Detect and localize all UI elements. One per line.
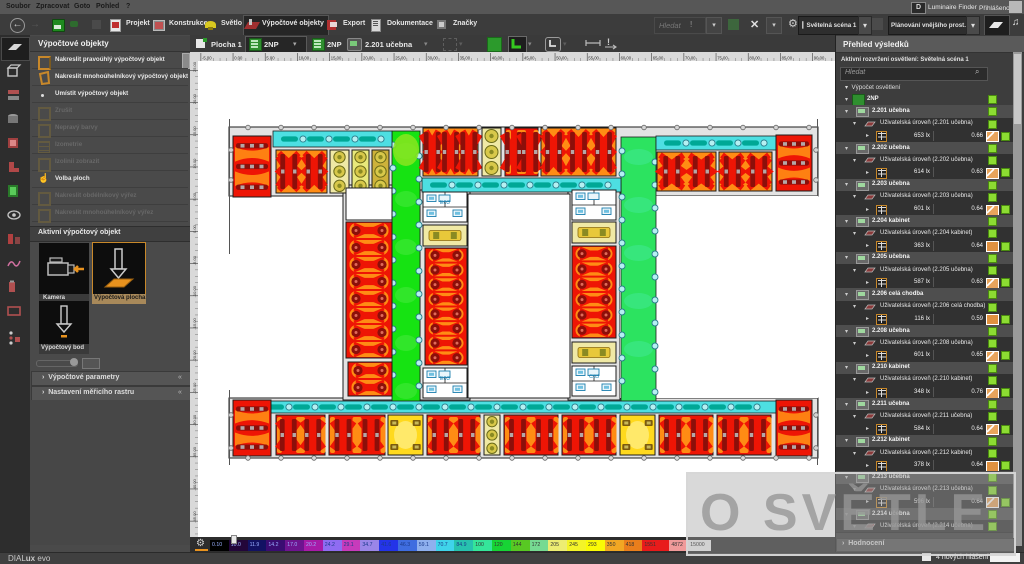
svg-text:15.00: 15.00 bbox=[331, 56, 342, 61]
svg-text:35.00: 35.00 bbox=[460, 56, 471, 61]
svg-text:30.00: 30.00 bbox=[427, 56, 438, 61]
svg-text:40.00: 40.00 bbox=[492, 56, 503, 61]
svg-text:85.00: 85.00 bbox=[782, 56, 793, 61]
svg-text:90.00: 90.00 bbox=[814, 56, 825, 61]
svg-text:25.00: 25.00 bbox=[192, 61, 197, 72]
svg-text:70.00: 70.00 bbox=[685, 56, 696, 61]
svg-text:0.00: 0.00 bbox=[192, 224, 197, 233]
svg-text:55.00: 55.00 bbox=[588, 56, 599, 61]
svg-text:-5.00: -5.00 bbox=[192, 255, 197, 265]
svg-text:15.00: 15.00 bbox=[192, 126, 197, 137]
svg-text:-10.00: -10.00 bbox=[192, 285, 197, 297]
svg-text:20.00: 20.00 bbox=[363, 56, 374, 61]
svg-text:45.00: 45.00 bbox=[524, 56, 535, 61]
svg-text:-40.00: -40.00 bbox=[192, 478, 197, 490]
svg-text:E03: E03 bbox=[440, 376, 450, 382]
svg-text:-30.00: -30.00 bbox=[192, 414, 197, 426]
svg-text:E03: E03 bbox=[440, 200, 450, 206]
svg-text:20.00: 20.00 bbox=[192, 93, 197, 104]
svg-text:0.00: 0.00 bbox=[234, 56, 243, 61]
svg-text:-20.00: -20.00 bbox=[192, 350, 197, 362]
svg-text:50.00: 50.00 bbox=[556, 56, 567, 61]
svg-text:C03: C03 bbox=[589, 374, 599, 380]
svg-text:60.00: 60.00 bbox=[621, 56, 632, 61]
svg-text:25.00: 25.00 bbox=[395, 56, 406, 61]
svg-text:5.00: 5.00 bbox=[192, 192, 197, 201]
svg-text:5.00: 5.00 bbox=[266, 56, 275, 61]
svg-text:-15.00: -15.00 bbox=[192, 317, 197, 329]
svg-text:10.00: 10.00 bbox=[192, 158, 197, 169]
svg-text:-45.00: -45.00 bbox=[192, 511, 197, 523]
svg-text:80.00: 80.00 bbox=[749, 56, 760, 61]
svg-text:75.00: 75.00 bbox=[717, 56, 728, 61]
svg-text:-35.00: -35.00 bbox=[192, 446, 197, 458]
svg-text:65.00: 65.00 bbox=[653, 56, 664, 61]
svg-text:-25.00: -25.00 bbox=[192, 382, 197, 394]
svg-text:10.00: 10.00 bbox=[299, 56, 310, 61]
